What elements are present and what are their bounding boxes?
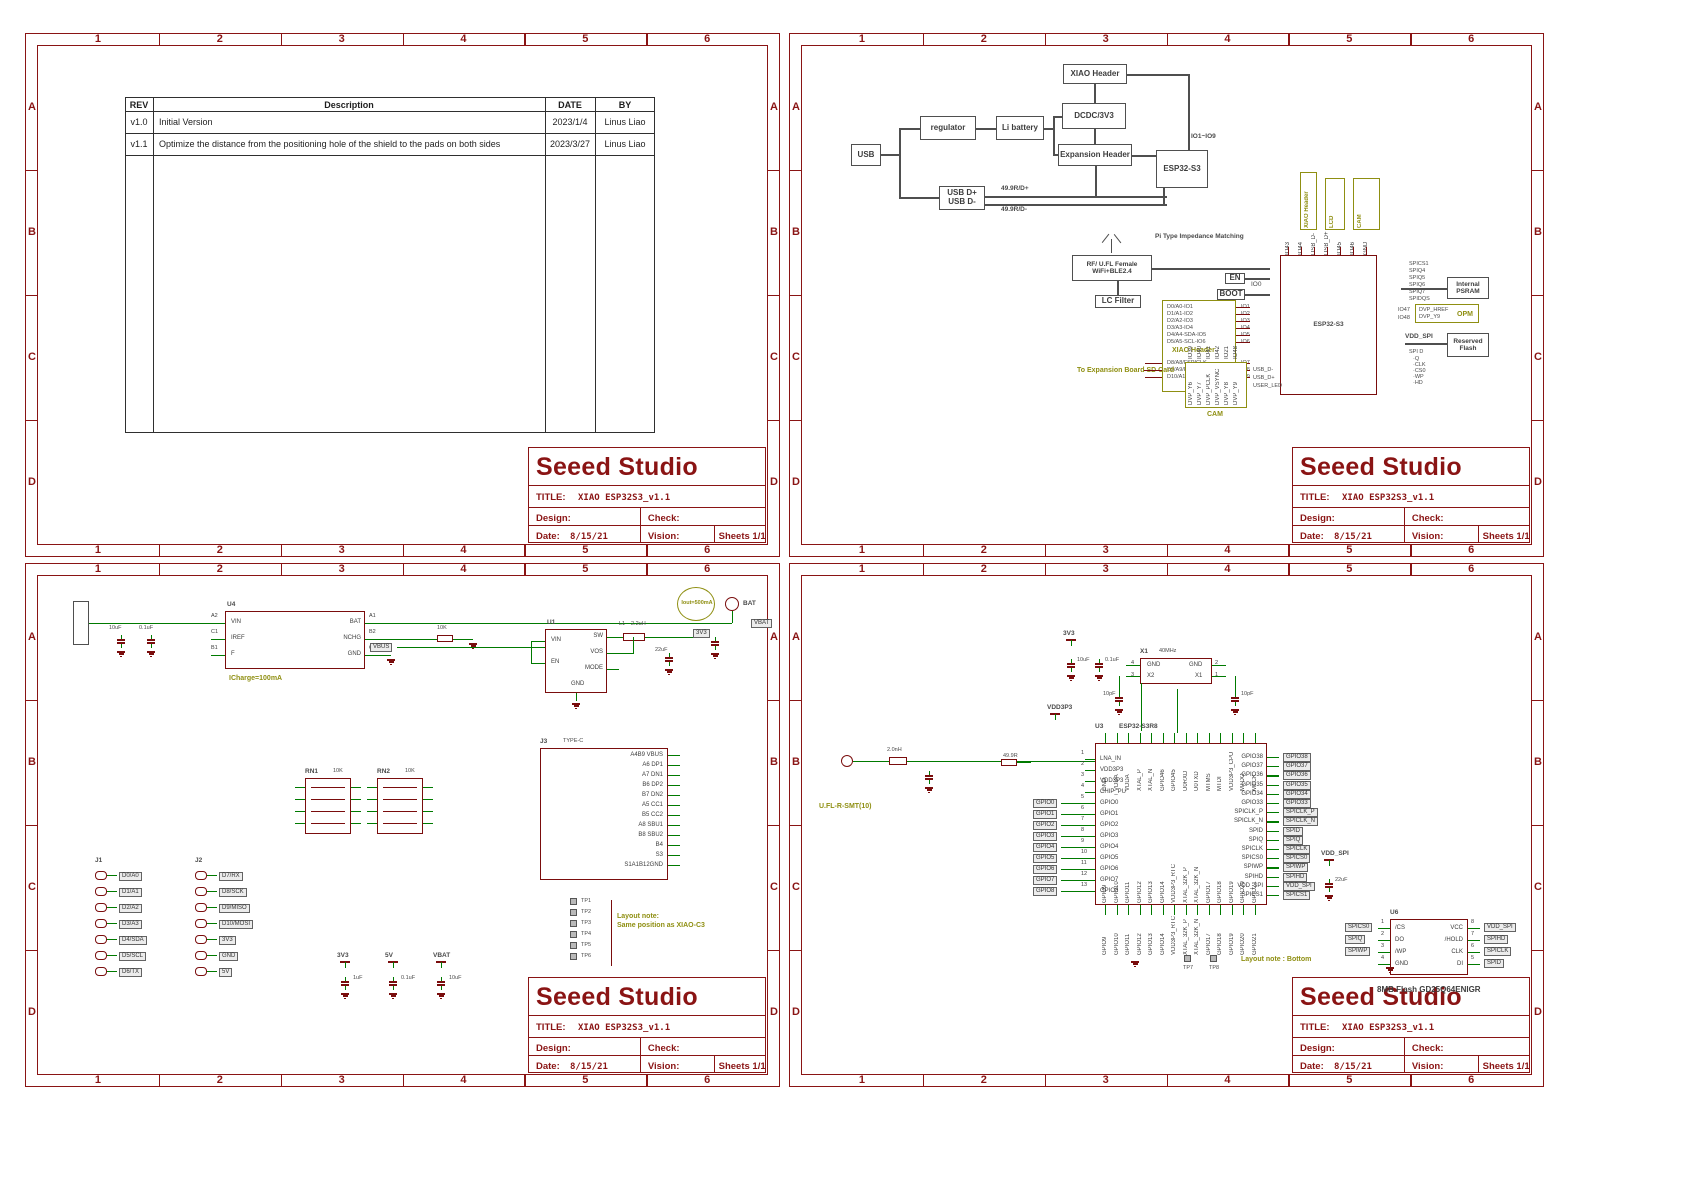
gpio-net-tag: GPIO5 xyxy=(1033,854,1057,863)
spi-net-tag: VDD_SPI xyxy=(1283,882,1315,891)
mline-segment xyxy=(1410,33,1411,45)
mline-segment xyxy=(1292,1037,1530,1038)
spi-net-tag: GPIO34 xyxy=(1283,790,1311,799)
gnd-symbol xyxy=(1234,714,1236,715)
wire-segment xyxy=(1267,812,1279,813)
power-label: 5V xyxy=(385,952,393,960)
test-point-label: TP3 xyxy=(581,920,591,926)
top-interface-title: CAM xyxy=(1357,182,1363,228)
mline-segment xyxy=(714,525,715,543)
mline-segment xyxy=(923,545,924,557)
revision-cell-date: 2023/3/27 xyxy=(545,139,595,149)
gpio-net-tag-v: GPIO14 xyxy=(1160,919,1166,955)
design-label: Design: xyxy=(1300,513,1335,524)
dcdc-pin: SW xyxy=(567,633,603,640)
mline-segment xyxy=(403,1075,404,1087)
flash-pin-num: 7 xyxy=(1471,931,1474,937)
mline-segment xyxy=(528,507,766,508)
header-pad xyxy=(95,903,107,912)
esp-left-pin: GPIO4 xyxy=(1100,844,1118,851)
series-resistor-label: 49.9R/D+ xyxy=(1001,185,1029,193)
title-value: XIAO ESP32S3_v1.1 xyxy=(578,1023,670,1033)
esp-top-pin: VDDA xyxy=(1125,747,1132,791)
wire-segment xyxy=(365,623,379,624)
bat-terminal-label: BAT xyxy=(743,600,756,608)
block-regulator: regulator xyxy=(920,116,976,140)
design-label: Design: xyxy=(1300,1043,1335,1054)
opm-net: IO48 xyxy=(1398,315,1410,321)
check-label: Check: xyxy=(648,513,680,524)
grid-row-label: B xyxy=(770,227,778,238)
esp-top-pin: GPIO46 xyxy=(1160,747,1167,791)
date-value: 8/15/21 xyxy=(570,1062,608,1072)
capacitor xyxy=(1231,697,1239,699)
wire-segment xyxy=(211,655,225,656)
grid-row-label: D xyxy=(770,477,778,488)
capacitor xyxy=(1067,663,1075,665)
antenna-connector xyxy=(841,755,853,767)
grid-row-label: C xyxy=(1534,882,1542,893)
esp-left-pin: GPIO2 xyxy=(1100,822,1118,829)
gnd-symbol xyxy=(149,653,154,654)
date-value: 8/15/21 xyxy=(570,532,608,542)
wire-segment xyxy=(1197,733,1198,743)
gline2-segment xyxy=(899,128,920,130)
dcdc-gnd-pin: GND xyxy=(571,681,584,688)
wire-segment xyxy=(211,639,225,640)
cam-net: IO48 xyxy=(1233,333,1239,359)
grid-row-label: A xyxy=(792,632,800,643)
mline-segment xyxy=(524,1075,525,1087)
date-value: 8/15/21 xyxy=(1334,1062,1372,1072)
esp-bottom-pin: GPIO11 xyxy=(1125,857,1132,903)
gnd-symbol xyxy=(665,669,673,671)
rl-segment xyxy=(383,823,417,824)
date-label: Date: xyxy=(536,1061,560,1072)
gline2-segment xyxy=(1405,343,1447,345)
wire-segment xyxy=(351,799,361,800)
pad-net-tag: D3/A3 xyxy=(119,920,142,929)
wire-segment xyxy=(423,811,433,812)
wire-segment xyxy=(619,653,633,654)
grid-col-label: 5 xyxy=(582,564,588,575)
3v3-tag: 3V3 xyxy=(693,629,710,638)
test-point-label: TP7 xyxy=(1183,965,1193,971)
wire-segment xyxy=(1235,702,1236,706)
esp-right-pin: SPID xyxy=(1205,828,1263,835)
gline2-segment xyxy=(1245,278,1270,280)
esp-right-pin: GPIO35 xyxy=(1205,782,1263,789)
mline-segment xyxy=(1532,295,1544,296)
mline-segment xyxy=(768,825,780,826)
wire-segment xyxy=(668,855,680,856)
header-pad xyxy=(95,887,107,896)
pad-net-tag: D8/SCK xyxy=(219,888,247,897)
wire-segment xyxy=(668,815,680,816)
wire-segment xyxy=(668,795,680,796)
grid-col-label: 5 xyxy=(582,34,588,45)
spi-net-tag: SPID xyxy=(1283,827,1303,836)
rf-label: WiFi+BLE2.4 xyxy=(1092,268,1132,275)
gline2-segment xyxy=(1188,74,1190,150)
wire-segment xyxy=(1126,676,1140,677)
charger-ref: U4 xyxy=(227,601,235,609)
flash-pin-num: 5 xyxy=(1471,955,1474,961)
wire-segment xyxy=(1128,733,1129,743)
charger-pin: BAT xyxy=(323,619,361,626)
check-label: Check: xyxy=(1412,513,1444,524)
test-point-label: TP5 xyxy=(581,942,591,948)
mline-segment xyxy=(25,170,37,171)
wire-segment xyxy=(345,962,346,968)
vbat-tag: VBAT xyxy=(751,619,772,628)
rn-value: 10K xyxy=(333,768,343,774)
psram-net: SPIQ4 xyxy=(1409,268,1425,274)
header-pad xyxy=(95,871,107,880)
grid-col-label: 1 xyxy=(95,545,101,556)
mline-segment xyxy=(789,825,801,826)
grid-col-label: 2 xyxy=(981,1075,987,1086)
mline-segment xyxy=(1288,563,1289,575)
cam-pin: DVP_Y9 xyxy=(1233,365,1239,405)
grid-col-label: 2 xyxy=(981,564,987,575)
spi-net-tag: GPIO35 xyxy=(1283,781,1311,790)
rf-label: RF/ U.FL Female xyxy=(1087,261,1138,268)
spi-net-tag: GPIO33 xyxy=(1283,799,1311,808)
mline-segment xyxy=(1167,563,1168,575)
grid-row-label: B xyxy=(28,757,36,768)
esp-bottom-pin: GPIO13 xyxy=(1148,857,1155,903)
grid-row-label: B xyxy=(1534,227,1542,238)
cam-net: IO40 xyxy=(1197,333,1203,359)
rl-segment xyxy=(1353,247,1354,255)
cap-value: 22uF xyxy=(1335,877,1348,883)
gnd-symbol xyxy=(387,659,395,661)
mline-segment xyxy=(403,33,404,45)
gnd-symbol xyxy=(714,658,716,659)
wire-segment xyxy=(1468,964,1480,965)
block-regulator-label: regulator xyxy=(931,124,966,133)
flash-pin: GND xyxy=(1395,961,1408,968)
wire-segment xyxy=(351,787,361,788)
gnd-symbol xyxy=(1067,675,1075,677)
flash-pin-num: 8 xyxy=(1471,919,1474,925)
esp-pin-num: 10 xyxy=(1081,849,1087,855)
esp-right-pin: SPICLK_N xyxy=(1205,818,1263,825)
mline-segment xyxy=(1410,563,1411,575)
gnd-symbol xyxy=(117,651,125,653)
header-pad xyxy=(95,919,107,928)
rn-value: 10K xyxy=(405,768,415,774)
gpio-net-tag: GPIO4 xyxy=(1033,843,1057,852)
company-name: Seeed Studio xyxy=(1300,453,1462,482)
gnd-symbol xyxy=(1389,972,1391,973)
iout-note-circle: Iout=500mA xyxy=(677,587,715,621)
capacitor xyxy=(925,775,933,777)
rl-segment xyxy=(611,900,612,966)
grid-col-label: 4 xyxy=(1224,545,1230,556)
resistor-value: 10K xyxy=(437,625,447,631)
rl-segment xyxy=(311,787,345,788)
block-li-battery: Li battery xyxy=(996,116,1044,140)
flash-pin-num: 1 xyxy=(1381,919,1384,925)
gline2-segment xyxy=(899,197,939,199)
gpio-net-tag-v: GPIO10 xyxy=(1114,919,1120,955)
esp-right-pin: SPICLK xyxy=(1205,846,1263,853)
wire-segment xyxy=(1209,905,1210,915)
wire-segment xyxy=(1378,940,1390,941)
header-pad xyxy=(95,967,107,976)
test-point-label: TP4 xyxy=(581,931,591,937)
test-point xyxy=(570,931,577,938)
gnd-symbol xyxy=(668,674,670,675)
mline-segment xyxy=(25,950,37,951)
wire-segment xyxy=(1085,792,1095,793)
vision-label: Vision: xyxy=(1412,1061,1444,1072)
wire-segment xyxy=(1119,676,1120,693)
wire-segment xyxy=(1212,665,1226,666)
grid-row-label: D xyxy=(28,477,36,488)
usb-pin: S3 xyxy=(581,852,663,859)
charger-pin: F xyxy=(231,651,235,658)
wire-segment xyxy=(669,662,670,666)
block-expansion-header: Expansion Header xyxy=(1058,144,1132,166)
block-usb: USB xyxy=(851,144,881,166)
mline-segment xyxy=(646,33,647,45)
psram-net: SPIDQS xyxy=(1409,296,1430,302)
wire-segment xyxy=(1212,676,1226,677)
opm-pin: DVP_HREF xyxy=(1419,307,1448,313)
grid-col-label: 4 xyxy=(1224,34,1230,45)
charger-pin: NCHG xyxy=(323,635,361,642)
resistor xyxy=(1001,759,1017,766)
grid-row-label: D xyxy=(770,1007,778,1018)
usb-pin: A5 CC1 xyxy=(581,802,663,809)
block-esp32s3-label: ESP32-S3 xyxy=(1163,165,1200,174)
test-point xyxy=(570,898,577,905)
capacitor xyxy=(437,981,445,983)
usb-pin: B5 CC2 xyxy=(581,812,663,819)
wire-segment xyxy=(393,986,394,990)
header-ref: J2 xyxy=(195,857,202,865)
wire-segment xyxy=(1267,757,1279,758)
opm-pin: DVP_Y9 xyxy=(1419,314,1440,320)
wire-segment xyxy=(732,611,733,623)
gline2-segment xyxy=(1053,116,1062,118)
pad-net-tag: 3V3 xyxy=(219,936,236,945)
iout-note: Iout=500mA xyxy=(680,600,714,606)
gline2-segment xyxy=(1053,116,1055,156)
mline-segment xyxy=(646,545,647,557)
esp-pin-num: 1 xyxy=(1081,750,1084,756)
wire-segment xyxy=(1085,825,1095,826)
gpio-net-tag: GPIO3 xyxy=(1033,832,1057,841)
gnd-symbol xyxy=(389,993,397,995)
dcdc-pin: MODE xyxy=(567,665,603,672)
wire-segment xyxy=(1126,665,1140,666)
block-dcdc-3v3: DCDC/3V3 xyxy=(1062,103,1126,129)
revision-cell-by: Linus Liao xyxy=(595,117,655,127)
wire-segment xyxy=(668,825,680,826)
wire-segment xyxy=(1267,766,1279,767)
mline-segment xyxy=(768,950,780,951)
mline-segment xyxy=(714,1055,715,1073)
grid-row-label: B xyxy=(28,227,36,238)
rl-segment xyxy=(383,787,417,788)
revision-header: Description xyxy=(153,100,545,110)
pad-net-tag: D7/RX xyxy=(219,872,243,881)
pad-net-tag: D0/A0 xyxy=(119,872,142,881)
wire-segment xyxy=(1061,858,1085,859)
boot-box: BOOT xyxy=(1217,289,1245,300)
check-label: Check: xyxy=(1412,1043,1444,1054)
gnd-symbol xyxy=(927,789,932,790)
esp-right-pin: SPIQ xyxy=(1205,837,1263,844)
inductor-value: 2.0nH xyxy=(887,747,902,753)
inductor-ref: L1 xyxy=(619,621,625,627)
gnd-symbol xyxy=(119,653,124,654)
test-point xyxy=(570,942,577,949)
wire-segment xyxy=(423,799,433,800)
test-point-label: TP2 xyxy=(581,909,591,915)
gpio-net-tag-v: GPIO19 xyxy=(1229,919,1235,955)
cap-value: 10uF xyxy=(449,975,462,981)
pad-net-tag: GND xyxy=(219,952,238,961)
revision-cell-date: 2023/1/4 xyxy=(545,117,595,127)
esp-top-pin: GPIO45 xyxy=(1171,747,1178,791)
flash-net-tag: SPIHD xyxy=(1484,935,1508,944)
esp-bottom-pin: GPIO9 xyxy=(1102,857,1109,903)
esp-left-pin: GPIO1 xyxy=(1100,811,1118,818)
rl-segment xyxy=(1144,370,1162,371)
wire-segment xyxy=(151,644,152,648)
mline-segment xyxy=(528,525,766,526)
gpio-net-tag-v: GPIO20 xyxy=(1240,919,1246,955)
spi-net-tag: GPIO38 xyxy=(1283,753,1311,762)
gpio-net-tag: GPIO8 xyxy=(1033,887,1057,896)
wire-segment xyxy=(1128,905,1129,915)
mline-segment xyxy=(159,545,160,557)
sheets-label: Sheets 1/1 xyxy=(1483,1061,1530,1072)
wire-segment xyxy=(1267,877,1279,878)
gline2-segment xyxy=(899,128,901,198)
wire-segment xyxy=(1186,905,1187,915)
mline-segment xyxy=(1532,950,1544,951)
flash-net-tag: SPID xyxy=(1484,959,1504,968)
header-pad xyxy=(195,903,207,912)
cam-title: CAM xyxy=(1207,411,1223,418)
esp-right-pin: GPIO36 xyxy=(1205,772,1263,779)
esp-pin-num: 12 xyxy=(1081,871,1087,877)
gline2-segment xyxy=(1245,294,1270,296)
wire-segment xyxy=(367,811,377,812)
wire-segment xyxy=(351,823,361,824)
grid-col-label: 1 xyxy=(859,564,865,575)
wire-segment xyxy=(607,637,619,638)
block-xiao-header-label: XIAO Header xyxy=(1071,70,1120,79)
rn-ref: RN2 xyxy=(377,768,390,776)
spi-net-tag: SPIWP xyxy=(1283,863,1308,872)
wire-segment xyxy=(107,955,117,956)
grid-col-label: 6 xyxy=(704,1075,710,1086)
capacitor xyxy=(341,981,349,983)
gnd-symbol xyxy=(1133,963,1138,964)
wire-segment xyxy=(107,875,117,876)
rl-segment xyxy=(311,811,345,812)
wire-segment xyxy=(1140,733,1141,743)
usb-pin: A6 DP1 xyxy=(581,762,663,769)
esp-pin-num: 7 xyxy=(1081,816,1084,822)
esp-pin-num: 6 xyxy=(1081,805,1084,811)
gpio-net-tag-v: XTAL_32K_P xyxy=(1183,919,1189,955)
wire-segment xyxy=(668,845,680,846)
crystal-ref: X1 xyxy=(1140,648,1148,656)
mline-segment xyxy=(1478,525,1479,543)
block-expansion-header-label: Expansion Header xyxy=(1060,151,1130,160)
wire-segment xyxy=(1243,905,1244,915)
mline-segment xyxy=(1404,507,1405,525)
mline-segment xyxy=(1410,545,1411,557)
grid-row-label: D xyxy=(28,1007,36,1018)
capacitor xyxy=(389,981,397,983)
wire-segment xyxy=(89,623,225,624)
esp-left-pin: GPIO3 xyxy=(1100,833,1118,840)
capacitor xyxy=(711,641,719,643)
gline2-segment xyxy=(1111,239,1112,253)
vision-label: Vision: xyxy=(648,1061,680,1072)
wire-segment xyxy=(668,805,680,806)
wire-segment xyxy=(668,755,680,756)
gnd-symbol xyxy=(1386,967,1394,969)
gnd-symbol xyxy=(147,651,155,653)
gnd-symbol xyxy=(344,998,346,999)
wire-segment xyxy=(1061,847,1085,848)
spi-net-tag: SPICLK_N xyxy=(1283,817,1318,826)
esp-top-pin: GND xyxy=(1102,747,1109,791)
usb-part: TYPE-C xyxy=(563,738,583,744)
grid-col-label: 1 xyxy=(95,34,101,45)
usb-pin: B8 SBU2 xyxy=(581,832,663,839)
flash-net-tag: SPICS0 xyxy=(1345,923,1372,932)
en-box-label: EN xyxy=(1229,274,1240,283)
mline-segment xyxy=(1288,545,1289,557)
grid-col-label: 5 xyxy=(1346,545,1352,556)
flash-pin-num: 2 xyxy=(1381,931,1384,937)
mline-segment xyxy=(281,33,282,45)
wire-segment xyxy=(1061,814,1085,815)
wire-segment xyxy=(619,637,623,638)
grid-col-label: 4 xyxy=(460,1075,466,1086)
wire-segment xyxy=(1186,733,1187,743)
dcdc-ref: U1 xyxy=(547,619,555,627)
mline-segment xyxy=(159,563,160,575)
mline-segment xyxy=(403,563,404,575)
wire-segment xyxy=(295,811,305,812)
gnd-symbol xyxy=(389,661,394,662)
gnd-symbol xyxy=(575,708,577,709)
wire-segment xyxy=(107,939,117,940)
mline-segment xyxy=(646,563,647,575)
wire-segment xyxy=(1209,733,1210,743)
check-label: Check: xyxy=(648,1043,680,1054)
mline-segment xyxy=(1404,525,1405,543)
gnd-symbol xyxy=(343,995,348,996)
wire-segment xyxy=(295,823,305,824)
grid-row-label: A xyxy=(1534,632,1542,643)
vbus-tag: VBUS xyxy=(370,643,392,652)
cap-value: 10uF xyxy=(1077,657,1090,663)
mline-segment xyxy=(1478,1055,1479,1073)
